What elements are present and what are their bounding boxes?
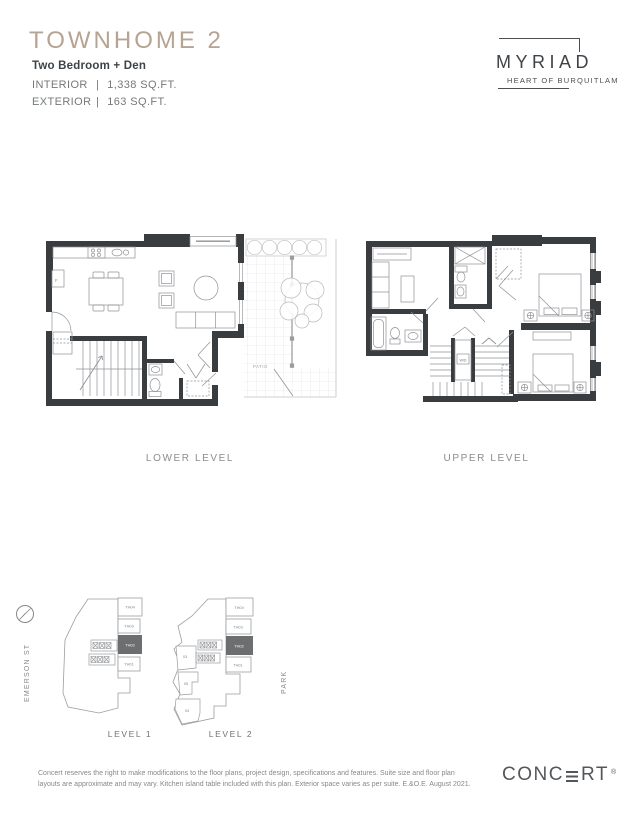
- plan-type: Two Bedroom + Den: [32, 60, 146, 72]
- brand-bracket-line: [499, 38, 580, 52]
- elevator-cores: [196, 640, 222, 663]
- concert-logo: CONCRT®: [502, 764, 618, 786]
- lower-level-label: LOWER LEVEL: [40, 453, 340, 464]
- brand-name: MYRIAD: [496, 52, 593, 73]
- registered-mark: ®: [611, 769, 618, 776]
- svg-text:03: 03: [183, 654, 187, 659]
- exterior-area: EXTERIOR | 163 SQ.FT.: [32, 96, 167, 108]
- svg-text:TH02: TH02: [234, 644, 244, 649]
- interior-separator: |: [96, 79, 99, 91]
- interior-value: 1,338 SQ.FT.: [107, 79, 177, 91]
- brand-rule-line: [498, 88, 569, 89]
- svg-text:TH04: TH04: [234, 605, 244, 610]
- interior-area: INTERIOR | 1,338 SQ.FT.: [32, 79, 177, 91]
- svg-text:TH01: TH01: [233, 663, 243, 668]
- furniture: [371, 247, 594, 396]
- brand-tagline: HEART OF BURQUITLAM: [507, 76, 619, 85]
- elevator-cores: [89, 640, 117, 665]
- keyplan-level2: TH04 TH03 TH02 TH01 03 05 04: [168, 594, 294, 732]
- fridge-label-layer: F: [40, 228, 80, 308]
- svg-text:TH02: TH02: [125, 643, 135, 648]
- street-label: EMERSON ST: [24, 644, 31, 702]
- svg-text:TH01: TH01: [124, 662, 134, 667]
- concert-logo-suffix: RT: [581, 764, 609, 786]
- exterior-label: EXTERIOR: [32, 96, 96, 108]
- concert-logo-e-bars-icon: [566, 771, 578, 782]
- disclaimer-text: Concert reserves the right to make modif…: [38, 768, 478, 790]
- svg-text:TH03: TH03: [233, 625, 243, 630]
- floorplan-sheet: TOWNHOME 2 Two Bedroom + Den INTERIOR | …: [0, 0, 640, 828]
- lower-level-floorplan: PATIO: [40, 228, 340, 420]
- exterior-value: 163 SQ.FT.: [107, 96, 167, 108]
- upper-level-label: UPPER LEVEL: [363, 453, 610, 464]
- page-title: TOWNHOME 2: [29, 27, 224, 55]
- exterior-separator: |: [96, 96, 99, 108]
- interior-label: INTERIOR: [32, 79, 96, 91]
- north-arrow-icon: [13, 602, 37, 626]
- hedge-row: [246, 239, 326, 256]
- level2-label: LEVEL 2: [168, 729, 294, 739]
- fridge-label: F: [55, 278, 58, 283]
- svg-text:05: 05: [184, 681, 188, 686]
- concert-logo-prefix: CONC: [502, 764, 564, 786]
- upper-level-floorplan: W/D: [363, 228, 610, 420]
- washer-dryer-label: W/D: [460, 359, 467, 363]
- stairs: [76, 341, 142, 396]
- svg-text:TH03: TH03: [124, 624, 134, 629]
- svg-text:TH04: TH04: [125, 605, 135, 610]
- patio-label: PATIO: [253, 364, 268, 369]
